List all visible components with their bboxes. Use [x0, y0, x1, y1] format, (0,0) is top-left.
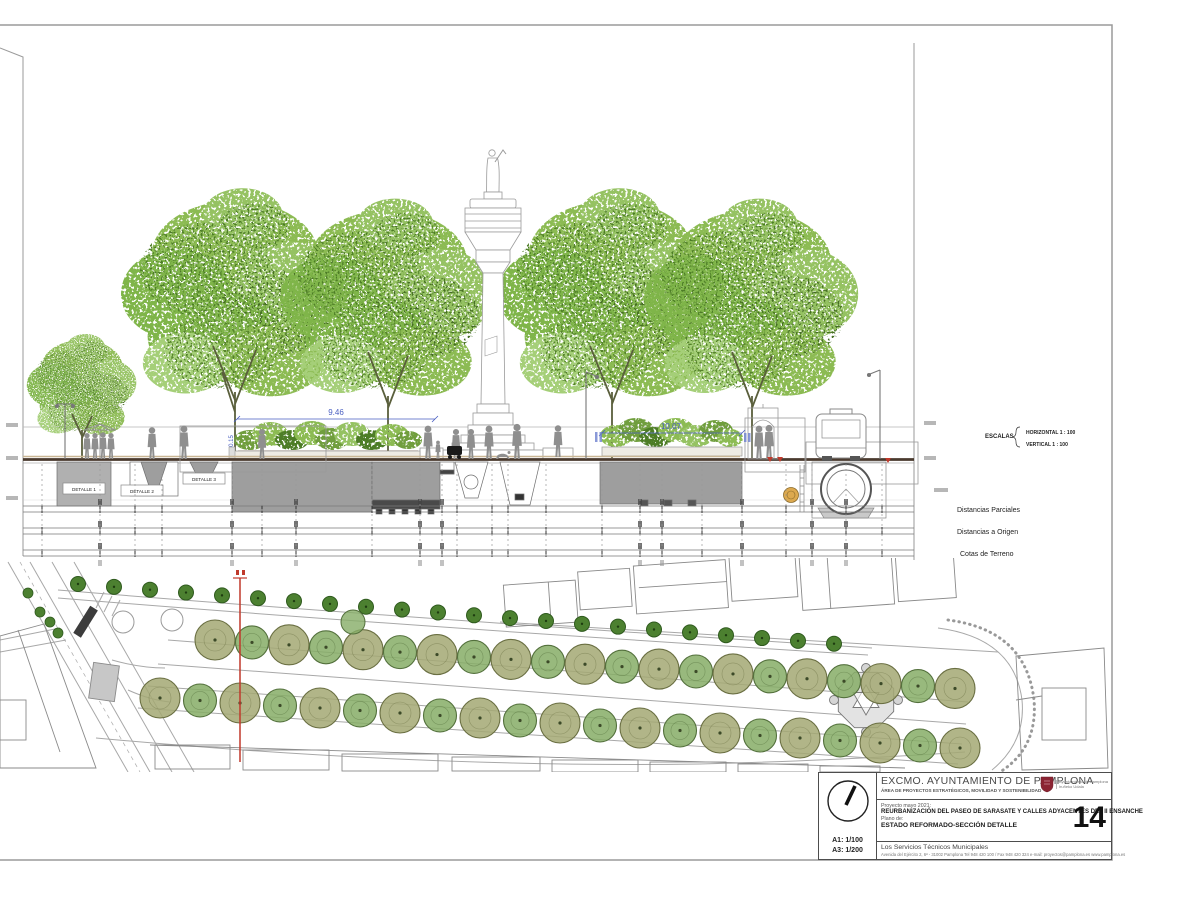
title-block-compass-cell: A1: 1/100 A3: 1/200 — [819, 773, 877, 859]
scale-a3: A3: 1/200 — [832, 846, 863, 855]
escalas-title: ESCALAS — [985, 434, 1014, 440]
ruler-label-origen: Distancias a Origen — [957, 529, 1018, 536]
title-block-footer: Los Servicios Técnicos Municipales Aveni… — [877, 842, 1111, 860]
title-block-project-cell: Proyecto mayo 2021: REURBANIZACIÓN DEL P… — [877, 800, 1111, 842]
project-title: REURBANIZACIÓN DEL PASEO DE SARASATE Y C… — [881, 809, 1076, 815]
title-block-header: EXCMO. AYUNTAMIENTO DE PAMPLONA ÁREA DE … — [877, 773, 1111, 800]
address-line: Avenida del Ejército 2, 6ª - 31002 Pampl… — [881, 852, 1107, 857]
scale-list: A1: 1/100 A3: 1/200 — [832, 836, 863, 855]
escalas-vertical: VERTICAL 1 : 100 — [1026, 442, 1068, 448]
detalle-3-label: DETALLE 3 — [192, 477, 216, 482]
plan-trees — [23, 577, 980, 769]
section-view: DETALLE 1 DETALLE 2 DETALLE 3 — [6, 150, 948, 518]
brace-glyph — [1013, 427, 1020, 447]
section-trees — [27, 188, 858, 458]
scale-a1: A1: 1/100 — [832, 836, 863, 845]
bus — [816, 409, 866, 461]
plan-view — [0, 540, 1108, 772]
organization-name: EXCMO. AYUNTAMIENTO DE PAMPLONA — [881, 775, 1040, 787]
ruler-label-parciales: Distancias Parciales — [957, 507, 1021, 514]
escalas-horizontal: HORIZONTAL 1 : 100 — [1026, 430, 1075, 436]
title-block-main: EXCMO. AYUNTAMIENTO DE PAMPLONA ÁREA DE … — [877, 773, 1111, 859]
author-name: Los Servicios Técnicos Municipales — [881, 844, 1107, 851]
shield-icon — [1040, 776, 1054, 793]
sewer-collector — [784, 462, 887, 518]
detalle-2-label: DETALLE 2 — [130, 489, 154, 494]
pamplona-logo: Ayuntamiento de Pamplona Iruñeko Udala — [1040, 775, 1108, 793]
title-block: A1: 1/100 A3: 1/200 EXCMO. AYUNTAMIENTO … — [818, 772, 1112, 860]
logo-caption: Ayuntamiento de Pamplona Iruñeko Udala — [1056, 780, 1108, 790]
escalas-legend: ESCALAS HORIZONTAL 1 : 100 VERTICAL 1 : … — [985, 427, 1075, 448]
dimension-10-07: 10.07 — [661, 422, 682, 431]
north-arrow-icon — [825, 778, 871, 829]
department-name: ÁREA DE PROYECTOS ESTRATÉGICOS, MOVILIDA… — [881, 788, 1040, 793]
sheet-number: 14 — [1073, 803, 1106, 833]
ruler-label-cotas: Cotas de Terreno — [960, 551, 1014, 558]
detalle-1-label: DETALLE 1 — [72, 487, 96, 492]
dimension-0-15: 0.15 — [229, 435, 235, 447]
dimension-9-46: 9.46 — [328, 408, 344, 417]
drawing-canvas: DETALLE 1 DETALLE 2 DETALLE 3 — [0, 0, 1200, 900]
section-cut-line — [233, 570, 247, 762]
drawing-sheet: DETALLE 1 DETALLE 2 DETALLE 3 — [0, 0, 1200, 900]
